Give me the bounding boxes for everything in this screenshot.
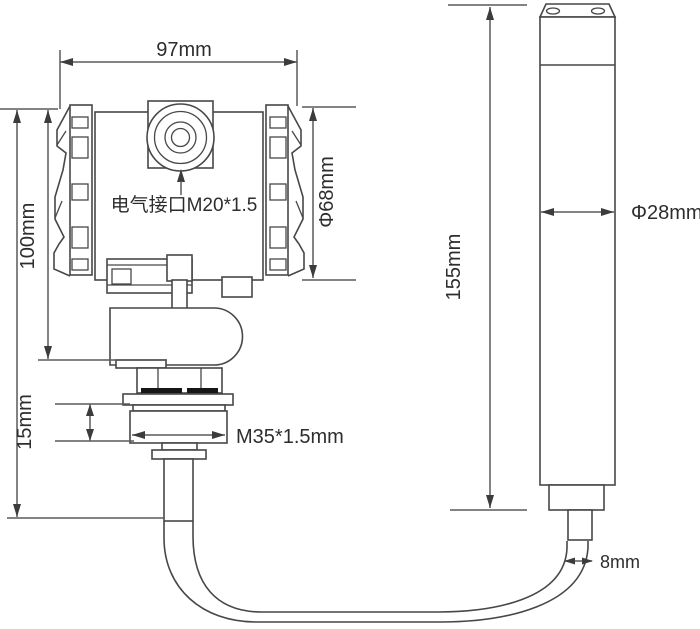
technical-drawing-canvas: 97mm 100mm Φ68mm 电气接口M20*1.5 [0, 0, 700, 629]
manifold-capsule [110, 308, 243, 365]
housing-width-label: 97mm [156, 39, 212, 61]
collar [152, 450, 206, 459]
probe-cap-hole-right [592, 8, 605, 14]
terminal-block [167, 255, 192, 281]
gland-height-label: 15mm [14, 394, 36, 450]
flange-step [133, 405, 225, 411]
left-cap-slot-4 [72, 227, 88, 248]
transmitter-housing [54, 101, 304, 280]
left-cap-slot-3 [72, 184, 88, 200]
capsule-tab [116, 360, 166, 368]
thread-spec-label: M35*1.5mm [236, 426, 344, 448]
probe-length-label: 155mm [443, 234, 465, 301]
probe-cap-hole-left [547, 8, 560, 14]
right-cap-slot-3 [270, 184, 286, 200]
outlet-tube [164, 459, 193, 521]
electrical-interface-label: 电气接口M20*1.5 [111, 194, 258, 216]
left-cap-slot-2 [72, 137, 88, 158]
cable-entry-bore [172, 129, 190, 147]
bolt-head-right [187, 388, 218, 393]
terminal-rail-window [112, 269, 131, 284]
cable-diameter-label: 8mm [600, 552, 640, 572]
right-cap-slot-2 [270, 137, 286, 158]
probe-diameter-label: Φ28mm [631, 202, 700, 224]
probe-cable-fitting [568, 510, 592, 540]
right-cap-slot-5 [270, 259, 286, 270]
right-cap-slot-4 [270, 227, 286, 248]
probe-bottom-step [549, 485, 604, 510]
probe-body [540, 17, 615, 485]
connection-stem [172, 280, 187, 309]
housing-height-label: 100mm [17, 203, 39, 270]
dimension-drawing-svg: 97mm 100mm Φ68mm 电气接口M20*1.5 [0, 0, 700, 629]
right-cap-slot-1 [270, 117, 286, 128]
left-cap-slot-5 [72, 259, 88, 270]
nut-neck [162, 443, 197, 450]
housing-diameter-label: Φ68mm [316, 156, 338, 228]
right-step-block [222, 277, 252, 297]
left-cap-slot-1 [72, 117, 88, 128]
probe [540, 4, 615, 540]
bolt-head-left [141, 388, 182, 393]
flange-plate [123, 394, 233, 405]
